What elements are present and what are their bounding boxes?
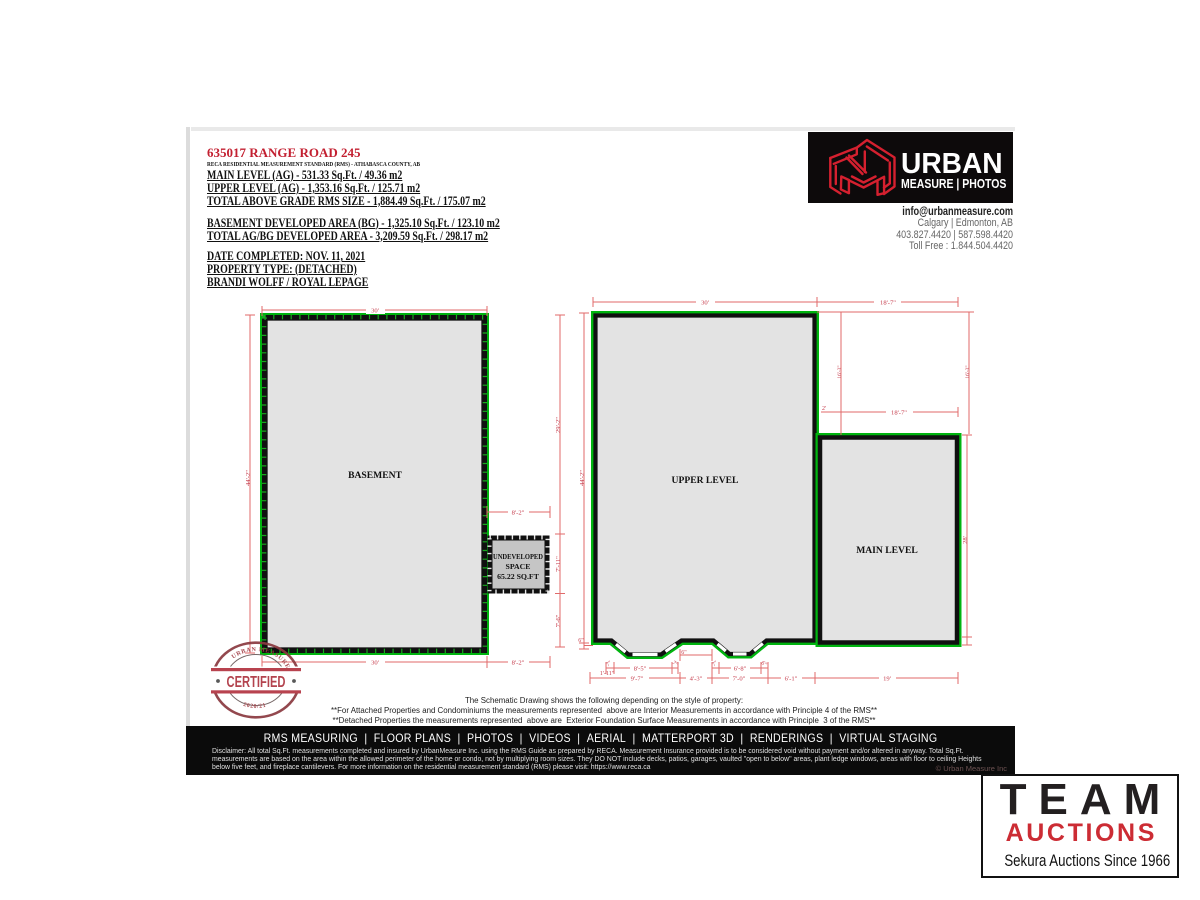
svg-text:2': 2' [822,406,826,412]
svg-text:SPACE: SPACE [506,562,531,571]
svg-text:65.22 SQ.FT: 65.22 SQ.FT [497,572,540,581]
svg-text:30': 30' [371,660,379,667]
svg-text:30': 30' [701,300,709,307]
svg-text:7'-11": 7'-11" [555,556,562,572]
svg-text:7'-6": 7'-6" [555,614,562,627]
svg-text:29'-2": 29'-2" [555,417,562,433]
svg-text:6'-1": 6'-1" [785,676,798,683]
svg-text:30': 30' [371,308,379,315]
svg-text:6'-8": 6'-8" [734,666,747,673]
svg-text:16'-3": 16'-3" [965,365,971,378]
svg-text:9'-7": 9'-7" [631,676,644,683]
svg-text:16'-3": 16'-3" [837,365,843,378]
svg-text:1'-11": 1'-11" [600,671,615,677]
svg-text:UNDEVELOPED: UNDEVELOPED [493,552,543,561]
svg-text:19': 19' [883,676,891,683]
svg-text:8'-2": 8'-2" [512,510,525,517]
svg-text:CERTIFIED: CERTIFIED [227,674,286,691]
svg-text:MAIN LEVEL: MAIN LEVEL [856,545,918,556]
svg-text:44'-2": 44'-2" [245,470,252,486]
svg-text:44'-2": 44'-2" [579,470,586,486]
svg-text:28': 28' [962,536,969,544]
svg-text:6": 6" [681,650,687,656]
svg-text:4'-3": 4'-3" [690,676,703,683]
svg-text:UPPER LEVEL: UPPER LEVEL [672,475,739,486]
svg-text:8'-2": 8'-2" [512,660,525,667]
svg-text:7": 7" [605,660,613,668]
svg-text:BASEMENT: BASEMENT [348,470,402,481]
svg-text:6": 6" [578,638,584,644]
svg-text:7'-0": 7'-0" [733,676,746,683]
svg-text:18'-7": 18'-7" [880,300,896,307]
svg-text:8'-5": 8'-5" [634,666,647,673]
svg-text:18'-7": 18'-7" [891,410,907,417]
